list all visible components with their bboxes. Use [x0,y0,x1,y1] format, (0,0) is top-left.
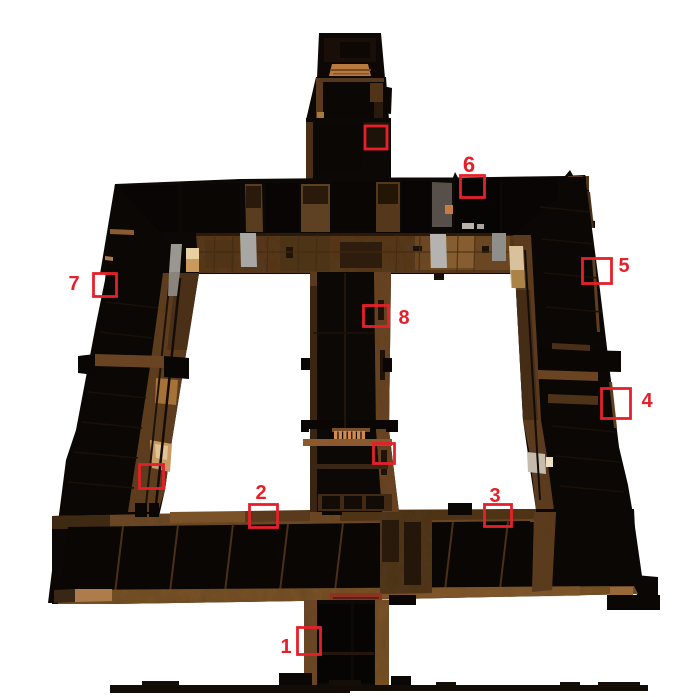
svg-text:5: 5 [618,255,629,277]
svg-text:8: 8 [398,307,409,329]
svg-text:6: 6 [463,152,475,177]
svg-text:4: 4 [641,390,653,412]
svg-text:7: 7 [68,273,79,295]
svg-text:1: 1 [280,636,291,658]
svg-text:3: 3 [489,485,500,507]
svg-text:2: 2 [255,482,266,504]
